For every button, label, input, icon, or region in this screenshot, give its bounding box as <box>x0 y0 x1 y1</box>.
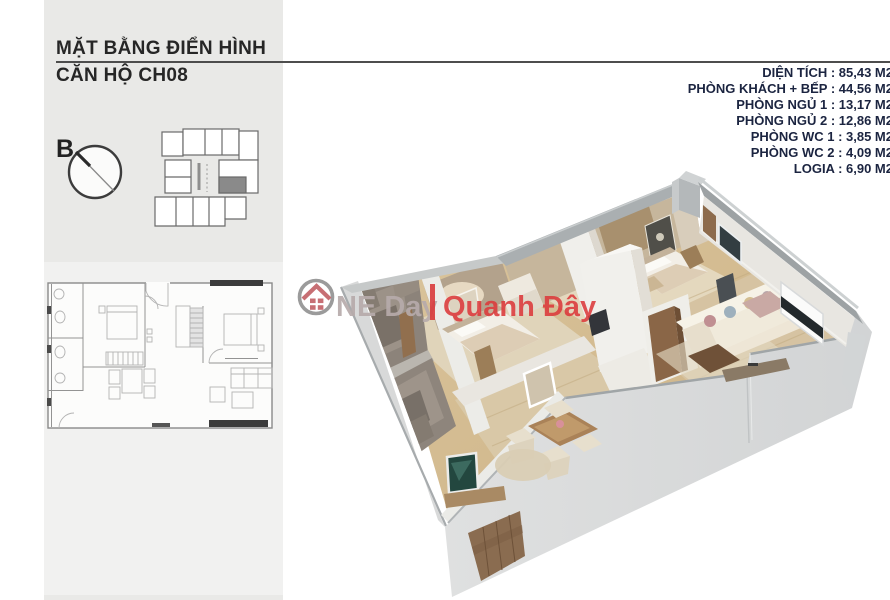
svg-text:Quanh Đây: Quanh Đây <box>443 291 596 323</box>
svg-text:NE Day: NE Day <box>336 291 438 323</box>
